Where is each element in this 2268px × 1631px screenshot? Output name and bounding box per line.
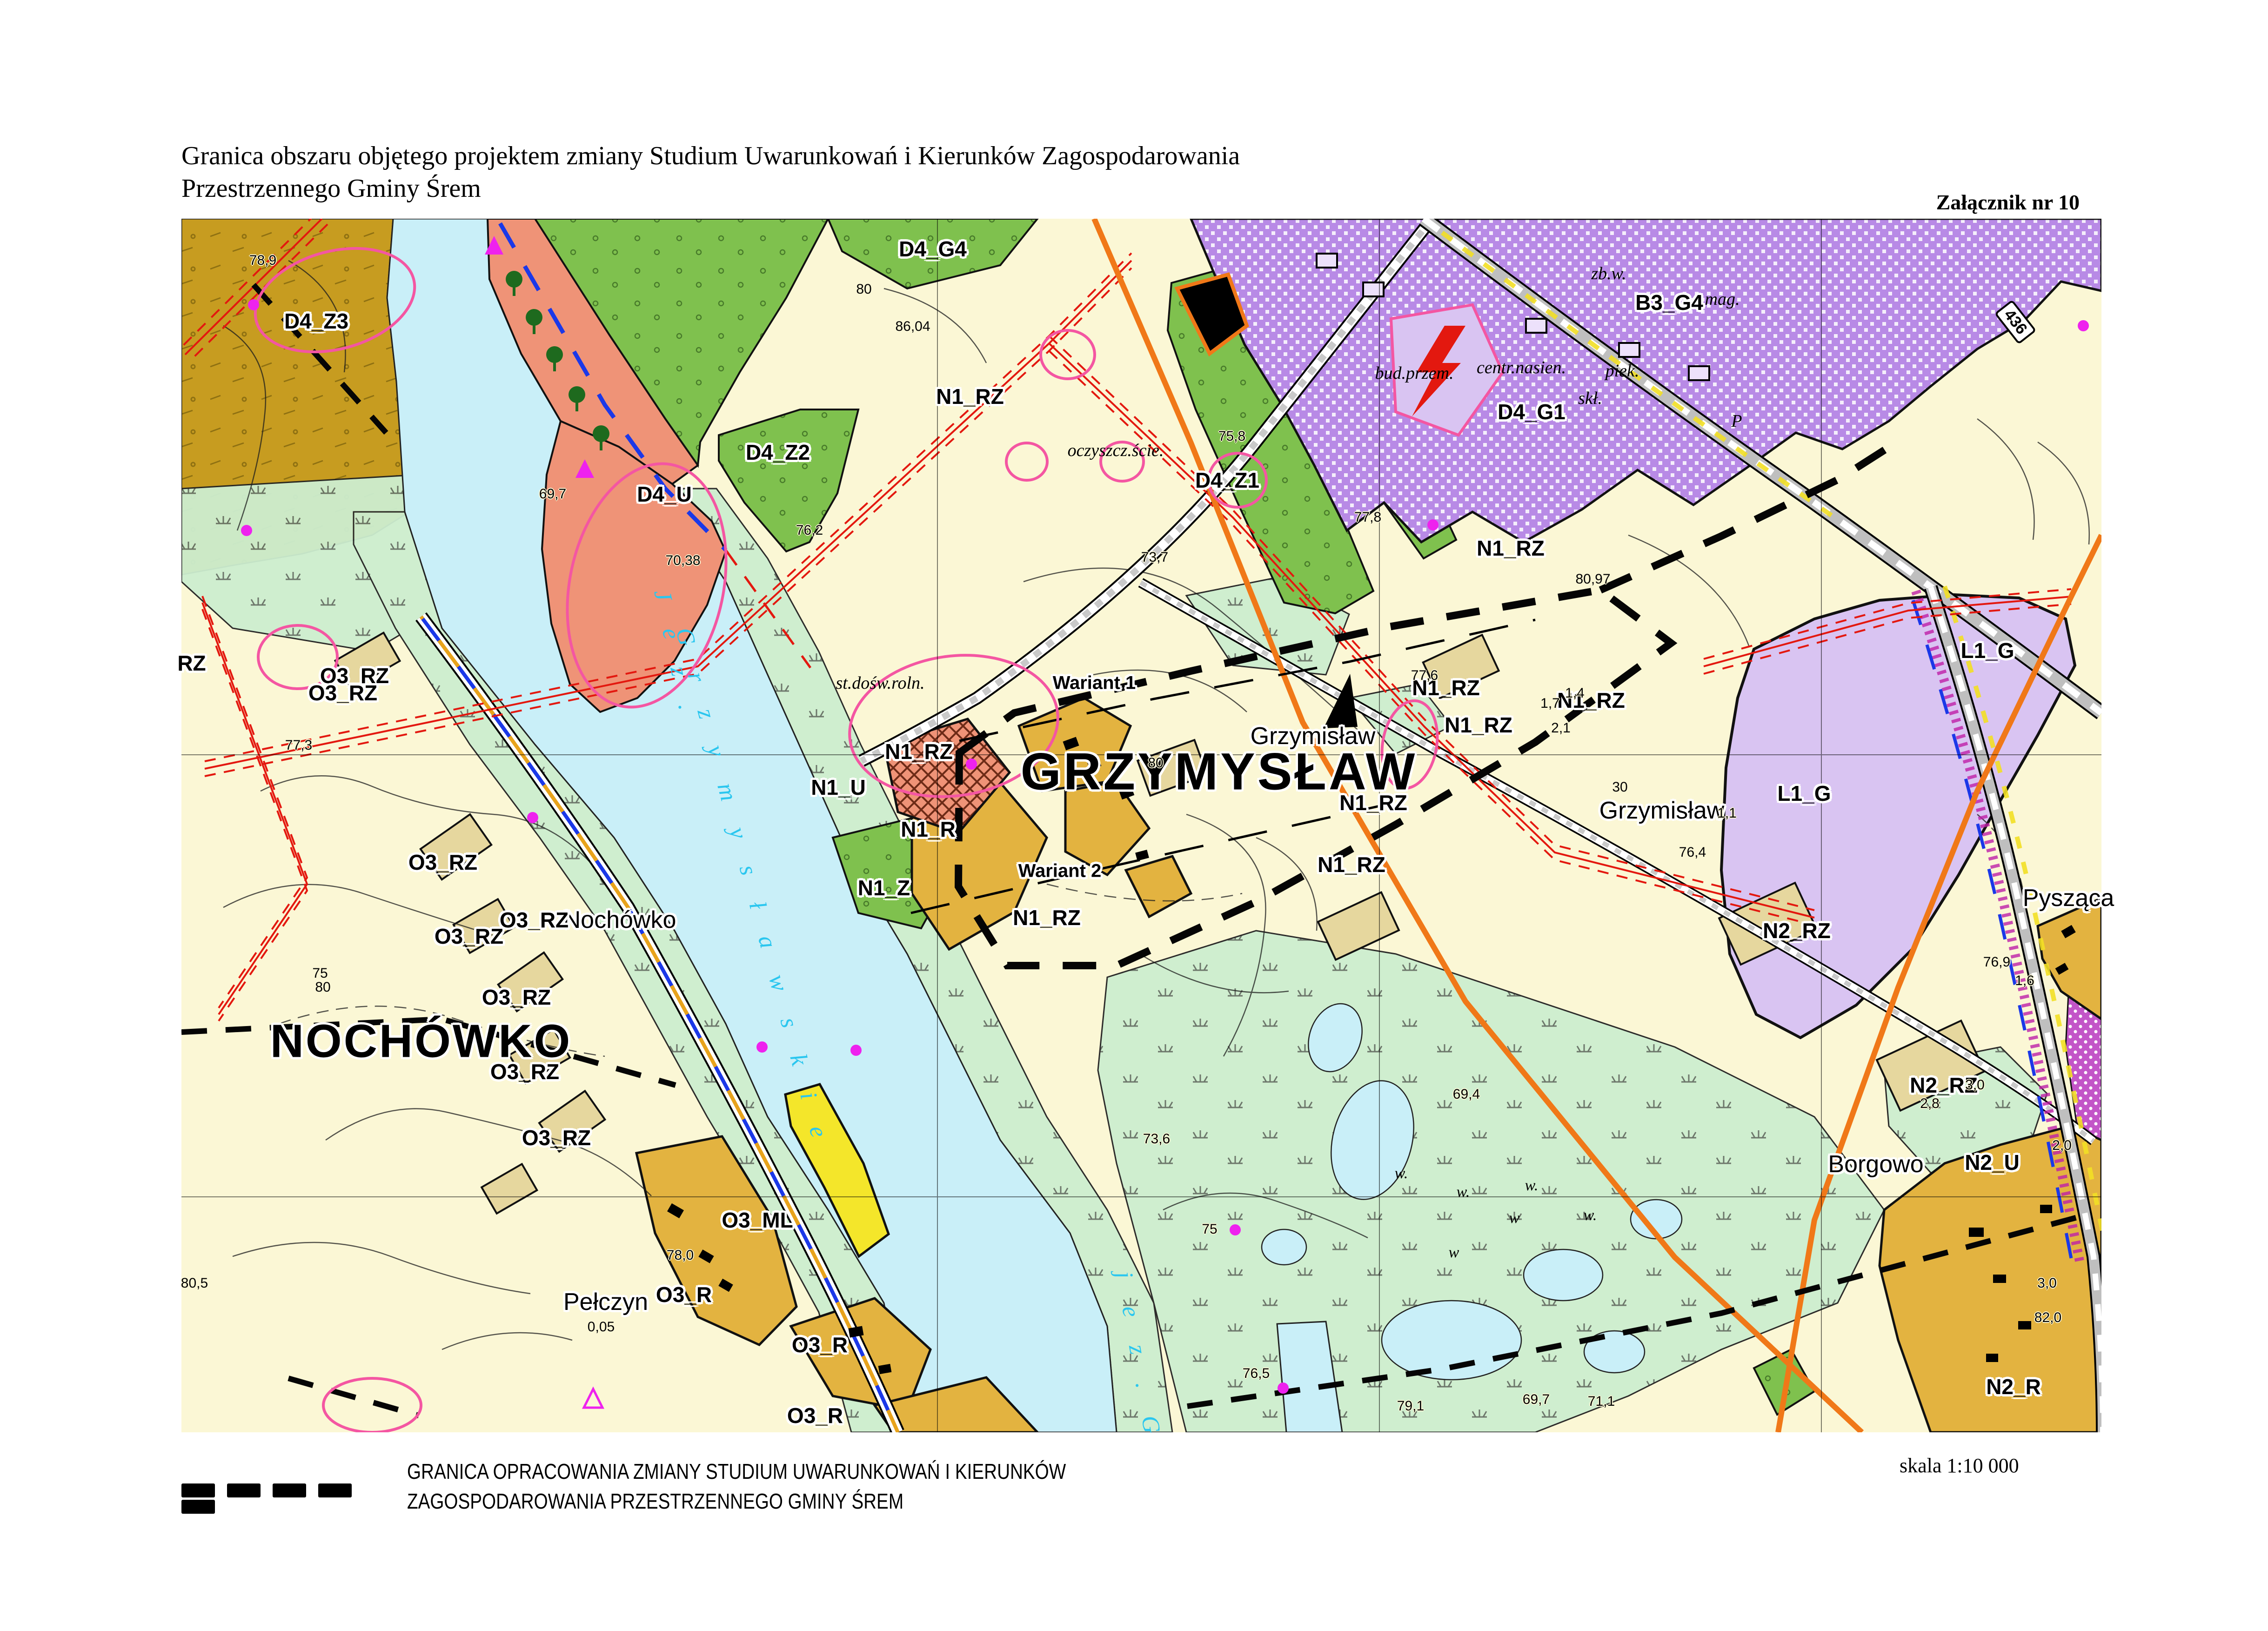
title-line2: Przestrzennego Gminy Śrem: [181, 174, 481, 203]
boundary-dash-symbol: [181, 1483, 386, 1497]
scale-label: skala 1:10 000: [1900, 1454, 2019, 1477]
title-line1: Granica obszaru objętego projektem zmian…: [181, 141, 1240, 170]
page-title: Granica obszaru objętego projektem zmian…: [181, 140, 1763, 205]
map-graphics: [181, 219, 2101, 1432]
map-canvas: [181, 219, 2101, 1432]
legend-line2: ZAGOSPODAROWANIA PRZESTRZENNEGO GMINY ŚR…: [407, 1489, 903, 1513]
attachment-label: Załącznik nr 10: [1884, 190, 2080, 215]
legend-line1: GRANICA OPRACOWANIA ZMIANY STUDIUM UWARU…: [407, 1459, 1066, 1483]
